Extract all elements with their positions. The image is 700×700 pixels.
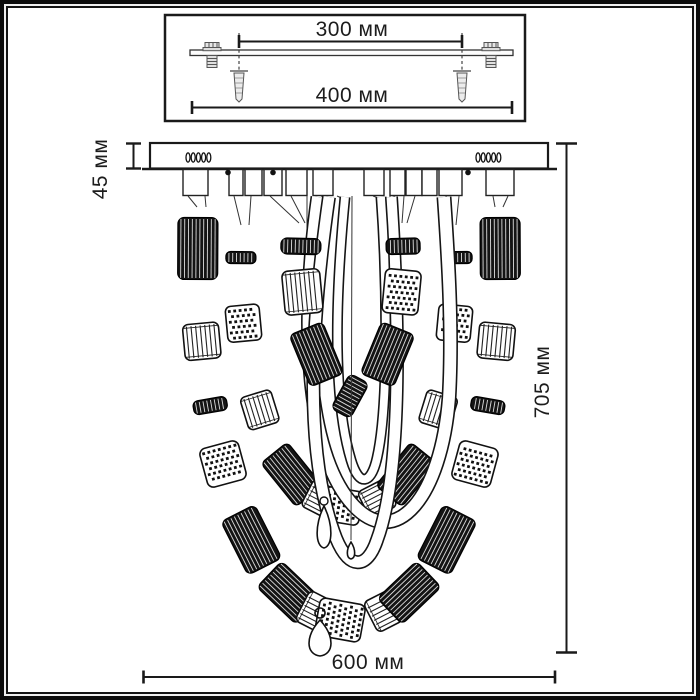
overall-height-label: 705 мм [531, 346, 554, 419]
vent-slots-right [476, 153, 501, 162]
canopy-height-label: 45 мм [89, 139, 112, 200]
drawing-page: 300 мм 400 мм 45 мм 705 мм 600 [0, 0, 700, 700]
overall-width-label: 600 мм [332, 651, 405, 674]
fixture-technical-drawing: 300 мм 400 мм 45 мм 705 мм 600 [0, 0, 700, 700]
chandelier-illustration [178, 170, 521, 657]
canopy-height-dimension [126, 144, 141, 169]
hole-spacing-label: 300 мм [316, 18, 389, 41]
overall-height-dimension [556, 144, 577, 653]
canopy-hangers [183, 170, 514, 196]
ceiling-canopy [142, 143, 557, 169]
bracket-length-label: 400 мм [316, 84, 389, 107]
vent-slots-left [186, 153, 211, 162]
mounting-detail-box: 300 мм 400 мм [165, 15, 525, 121]
